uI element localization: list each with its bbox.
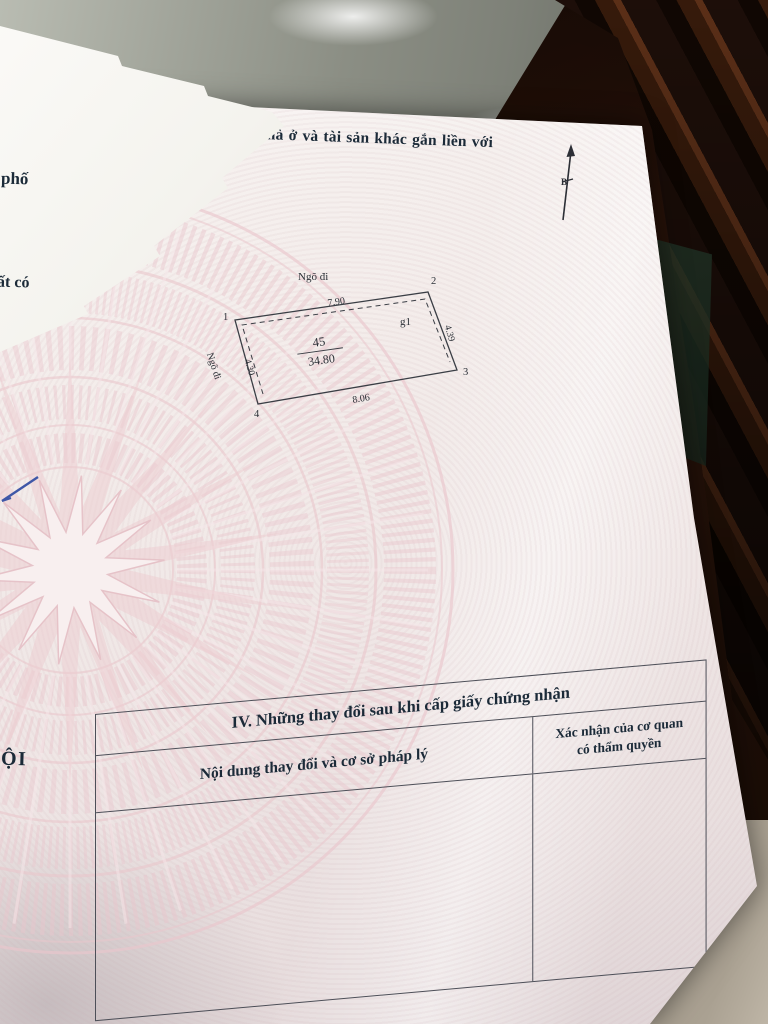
section4-table: IV. Những thay đổi sau khi cấp giấy chứn… [95,659,707,1021]
corner-3: 3 [463,367,468,378]
confirmation-cell-empty [533,759,706,981]
length-left: 4.30 [242,358,256,377]
street-left-label: Ngõ đi [204,351,223,381]
plot-outline [235,292,457,404]
edge-text-fragment-1: phố [1,169,29,190]
content-cell-empty [96,774,533,1020]
corner-2: 2 [431,276,436,287]
north-arrow-head [567,144,576,157]
edge-text-fragment-3: ỘI [1,748,28,772]
length-top: 7.90 [327,296,346,309]
plot-number: 45 [312,334,326,350]
plot-area: 34.80 [307,351,336,369]
pen-mark [0,470,46,506]
length-bottom: 8.06 [352,392,371,406]
edge-text-fragment-2: ất có [0,274,30,293]
corner-4: 4 [254,409,260,420]
annex-label: g1 [400,316,411,328]
length-right: 4.39 [442,324,456,343]
corner-1: 1 [223,312,228,323]
street-top-label: Ngõ đi [298,271,328,283]
north-arrow: B [549,140,593,232]
plot-setback-line [242,299,450,394]
plot-diagram: Ngõ đi Ngõ đi 7.90 8.06 4.30 4.39 45 34.… [185,262,485,427]
north-arrow-label: B [561,177,567,187]
